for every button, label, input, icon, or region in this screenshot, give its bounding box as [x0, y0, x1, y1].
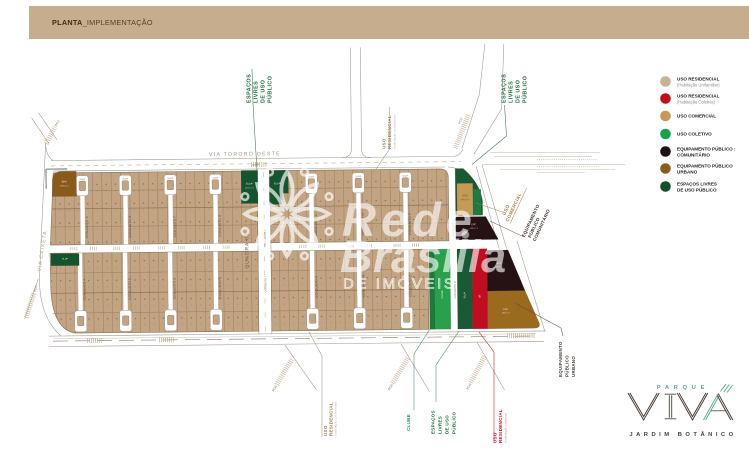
svg-text:CONJUNTO E: CONJUNTO E	[172, 277, 176, 299]
svg-text:EQUIPAMENTO PÚBLICO: EQUIPAMENTO PÚBLICO	[677, 163, 733, 169]
svg-text:LIVRES: LIVRES	[254, 81, 260, 103]
svg-text:AREA 1.9: AREA 1.9	[245, 186, 255, 189]
svg-text:(habitação unifamiliar): (habitação unifamiliar)	[393, 115, 397, 149]
svg-text:PÚBLICO: PÚBLICO	[565, 355, 570, 377]
svg-text:(habitação coletiva): (habitação coletiva)	[504, 413, 508, 443]
svg-text:USO RESIDENCIAL: USO RESIDENCIAL	[677, 94, 720, 99]
svg-text:LIVRES: LIVRES	[509, 81, 515, 103]
svg-text:CONJUNTO H: CONJUNTO H	[218, 215, 222, 237]
svg-text:CONJUNTO B: CONJUNTO B	[85, 216, 89, 238]
svg-text:EQUIPAMENTO PÚBLICO :: EQUIPAMENTO PÚBLICO :	[677, 146, 736, 152]
svg-text:DE USO: DE USO	[261, 80, 267, 103]
svg-text:ESPAÇOS: ESPAÇOS	[502, 74, 508, 103]
svg-text:UR: UR	[478, 294, 481, 298]
svg-text:CONJUNTO K: CONJUNTO K	[314, 275, 318, 298]
svg-text:SHVP: SHVP	[212, 178, 219, 180]
svg-text:SHVP: SHVP	[252, 163, 259, 167]
svg-text:DE USO: DE USO	[516, 80, 522, 103]
svg-text:CLUBE: CLUBE	[406, 414, 411, 431]
svg-text:PO1: PO1	[54, 119, 61, 127]
svg-text:AREA 1.6: AREA 1.6	[502, 311, 510, 314]
svg-text:VIA CAIXETA: VIA CAIXETA	[37, 230, 49, 272]
svg-text:JARDIM BOTÂNICO: JARDIM BOTÂNICO	[629, 431, 736, 438]
svg-text:CONJUNTO G: CONJUNTO G	[218, 276, 222, 299]
svg-text:USO COMERCIAL: USO COMERCIAL	[677, 114, 716, 119]
svg-text:USO: USO	[493, 432, 498, 443]
svg-text:PO5: PO5	[387, 383, 394, 391]
svg-text:USO COLETIVO: USO COLETIVO	[677, 132, 712, 137]
svg-text:CONJUNTO D: CONJUNTO D	[128, 215, 132, 238]
svg-text:CONJUNTO F: CONJUNTO F	[173, 215, 177, 237]
svg-text:RESIDENCIAL: RESIDENCIAL	[387, 115, 392, 149]
svg-text:PO4: PO4	[466, 383, 473, 391]
svg-text:URBANO: URBANO	[571, 356, 576, 377]
svg-text:(habitação unifamiliar): (habitação unifamiliar)	[334, 402, 338, 436]
svg-text:(Habitação Unifamiliar): (Habitação Unifamiliar)	[677, 83, 720, 88]
svg-text:USO RESIDENCIAL: USO RESIDENCIAL	[677, 77, 720, 82]
svg-text:COMUNITÁRIO: COMUNITÁRIO	[677, 152, 710, 158]
svg-text:ELUP: ELUP	[246, 182, 253, 185]
svg-text:LIVRES: LIVRES	[438, 416, 443, 434]
svg-text:ESPAÇOS LIVRES: ESPAÇOS LIVRES	[677, 182, 717, 187]
svg-text:PO6: PO6	[271, 385, 278, 393]
svg-text:CONJUNTO I: CONJUNTO I	[263, 276, 267, 292]
svg-text:SHVP: SHVP	[122, 179, 129, 181]
svg-text:EQUIPAMENTO: EQUIPAMENTO	[558, 341, 563, 377]
svg-text:CONJUNTO A: CONJUNTO A	[82, 278, 86, 301]
svg-text:URBANO: URBANO	[677, 170, 698, 175]
svg-text:EPU: EPU	[62, 180, 67, 183]
svg-text:PÚBLICO: PÚBLICO	[267, 76, 274, 103]
svg-text:ESPAÇOS: ESPAÇOS	[247, 74, 253, 103]
svg-text:DE USO PÚBLICO: DE USO PÚBLICO	[677, 187, 717, 193]
svg-text:ELUP: ELUP	[62, 258, 68, 260]
svg-text:CONJUNTO C: CONJUNTO C	[127, 277, 131, 300]
svg-text:PÚBLICO: PÚBLICO	[451, 411, 457, 434]
svg-text:SHVP: SHVP	[355, 176, 362, 178]
svg-text:SHVP: SHVP	[308, 177, 315, 179]
svg-text:ELUP: ELUP	[463, 292, 466, 299]
svg-text:QUADRA 01: QUADRA 01	[244, 232, 250, 268]
svg-text:VIA TORORÓ OESTE: VIA TORORÓ OESTE	[209, 150, 281, 158]
svg-text:(Habitação Coletiva): (Habitação Coletiva)	[677, 100, 716, 105]
svg-text:DE USO: DE USO	[445, 415, 450, 434]
svg-text:Brasília: Brasília	[340, 231, 507, 282]
svg-text:USO: USO	[382, 138, 387, 149]
svg-text:SHVP: SHVP	[402, 176, 409, 178]
svg-text:USO: USO	[323, 425, 328, 436]
svg-text:RESIDENCIAL: RESIDENCIAL	[498, 409, 503, 443]
svg-text:PARQUE: PARQUE	[657, 385, 709, 391]
svg-text:PO7: PO7	[33, 285, 39, 293]
svg-text:DE IMÓVEIS: DE IMÓVEIS	[343, 276, 457, 293]
svg-text:SHVP: SHVP	[167, 178, 174, 180]
svg-text:AREA 2.2: AREA 2.2	[60, 184, 70, 187]
svg-text:ESPAÇOS: ESPAÇOS	[431, 410, 436, 434]
svg-text:EPU: EPU	[503, 309, 508, 311]
svg-text:PÚBLICO: PÚBLICO	[522, 76, 529, 103]
svg-text:SHVP: SHVP	[79, 179, 86, 181]
